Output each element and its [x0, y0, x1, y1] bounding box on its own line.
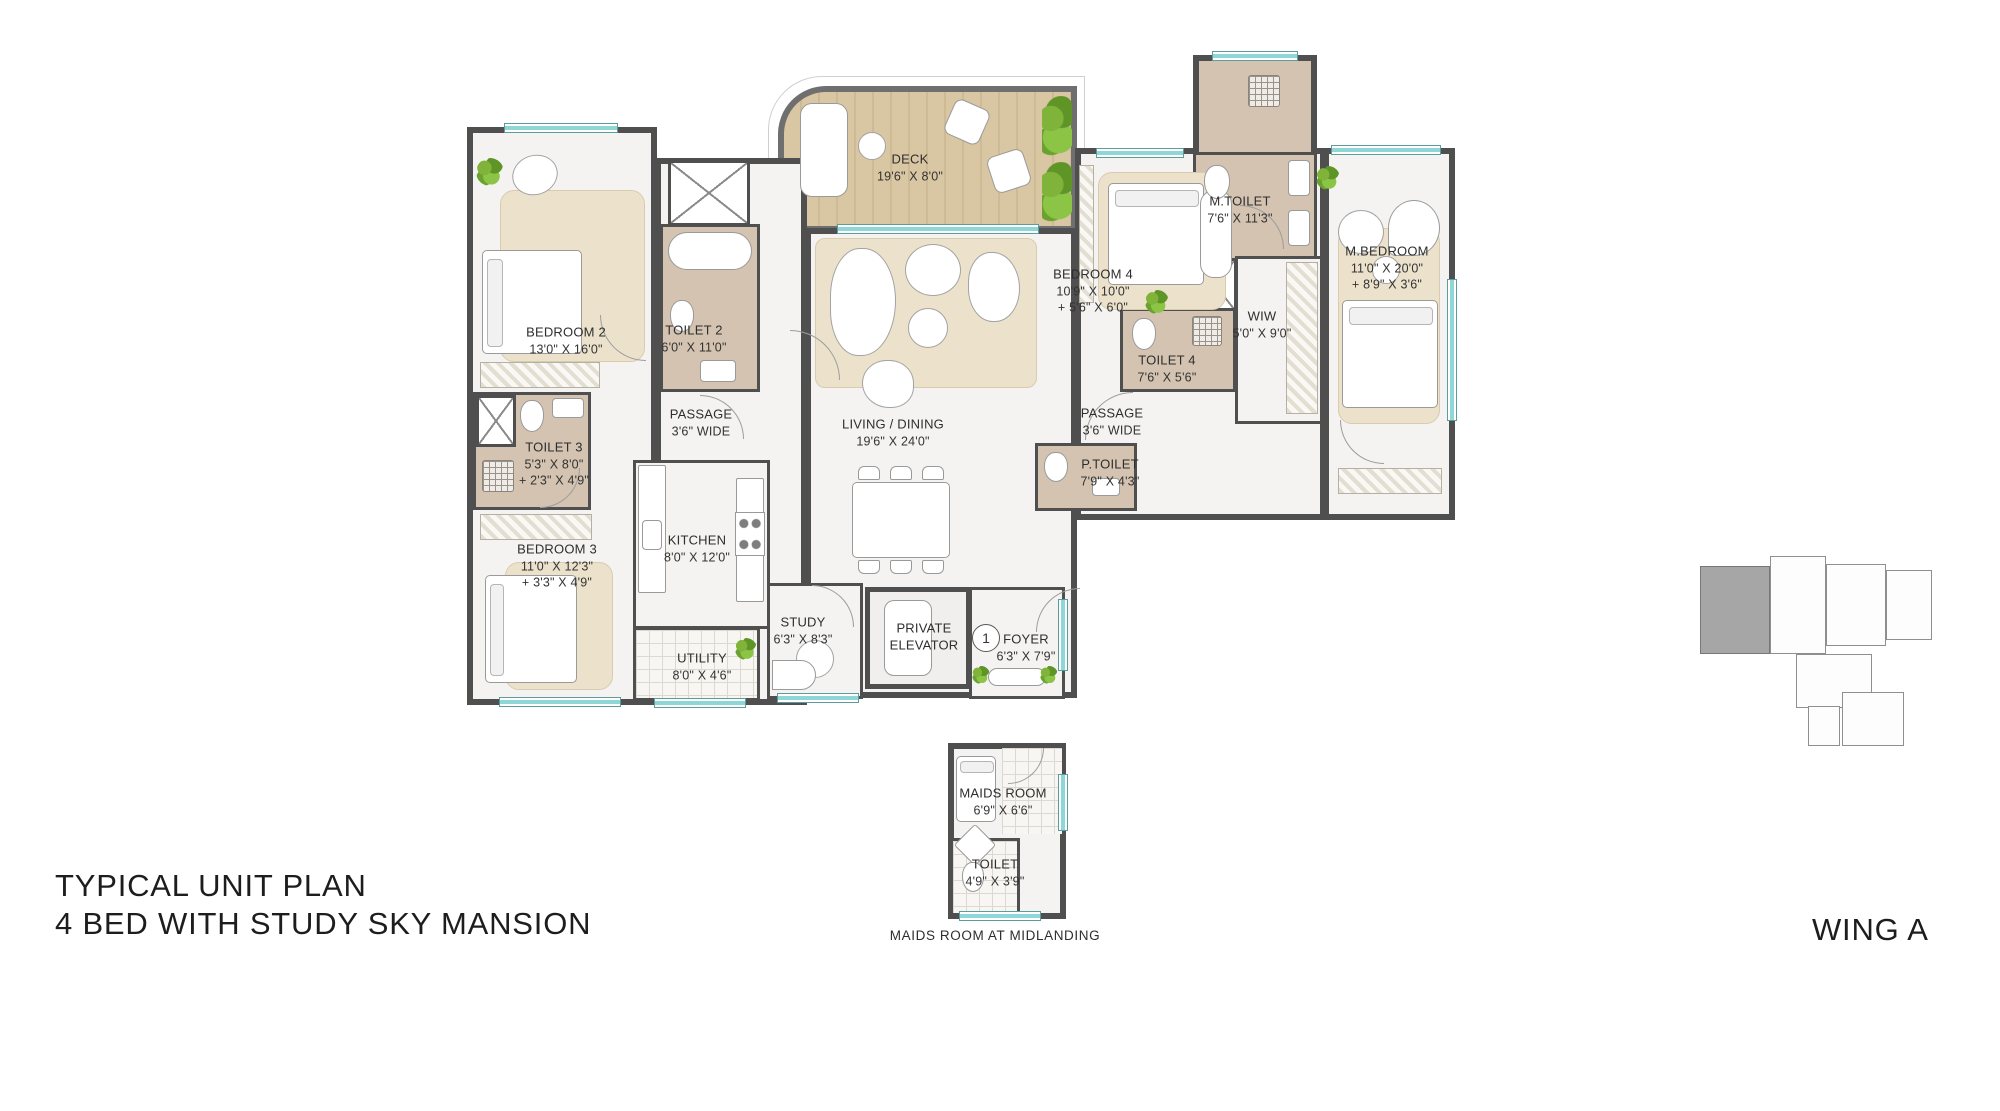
key-plan-unit [1808, 706, 1840, 746]
room-label-maids-toilet: TOILET4'9" X 3'9" [966, 857, 1025, 890]
window [1097, 149, 1183, 157]
sink-icon [1288, 160, 1310, 196]
toilet-icon [1044, 452, 1068, 482]
plan-title-line1: TYPICAL UNIT PLAN [55, 868, 367, 904]
plant-icon [735, 638, 757, 660]
foyer-level-marker: 1 [972, 624, 1000, 652]
sink-icon [700, 360, 736, 382]
window [1059, 775, 1067, 830]
window [655, 699, 745, 707]
plan-title-line2: 4 BED WITH STUDY SKY MANSION [55, 906, 591, 942]
chair-icon [858, 466, 880, 480]
room-label-m-bedroom: M.BEDROOM11'0" X 20'0"+ 8'9" X 3'6" [1345, 244, 1428, 293]
key-plan-unit [1842, 692, 1904, 746]
room-label-p-toilet: P.TOILET7'9" X 4'3" [1081, 457, 1140, 490]
maids-room-footnote: MAIDS ROOM AT MIDLANDING [890, 928, 1100, 943]
room-label-passage-right: PASSAGE3'6" WIDE [1081, 406, 1144, 439]
armchair-icon [862, 360, 914, 408]
key-plan-unit [1886, 570, 1932, 640]
room-label-utility: UTILITY8'0" X 4'6" [673, 651, 732, 684]
room-label-bedroom3: BEDROOM 311'0" X 12'3"+ 3'3" X 4'9" [517, 542, 597, 591]
room-label-toilet2: TOILET 26'0" X 11'0" [661, 323, 726, 356]
room-label-bedroom4: BEDROOM 410'9" X 10'0"+ 5'6" X 6'0" [1053, 267, 1133, 316]
room-label-m-toilet: M.TOILET7'6" X 11'3" [1207, 194, 1272, 227]
room-label-bedroom2: BEDROOM 213'0" X 16'0" [526, 325, 606, 358]
bathtub-icon [668, 232, 752, 270]
wall-segment [1320, 148, 1329, 520]
chair-icon [890, 560, 912, 574]
wing-label: WING A [1812, 912, 1929, 948]
armchair-icon [968, 252, 1020, 322]
toilet-icon [520, 400, 544, 432]
sink-icon [642, 520, 662, 550]
room-label-wiw: WIW5'0" X 9'0" [1233, 309, 1292, 342]
room-label-living: LIVING / DINING19'6" X 24'0" [842, 417, 944, 450]
dining-table-icon [852, 482, 950, 558]
chair-icon [922, 560, 944, 574]
bed-icon [485, 575, 577, 683]
key-plan-unit [1770, 556, 1826, 654]
plant-icon [1040, 666, 1058, 684]
shower-icon [1192, 316, 1222, 346]
room-label-maids-room: MAIDS ROOM6'9" X 6'6" [959, 786, 1046, 819]
chair-icon [890, 466, 912, 480]
wardrobe-icon [1338, 468, 1442, 494]
coffee-table-icon [908, 308, 948, 348]
sink-icon [552, 398, 584, 418]
chair-icon [922, 466, 944, 480]
shower-icon [1248, 75, 1280, 107]
duct-shaft [476, 395, 516, 447]
floor-plan-page: DECK19'6" X 8'0" BEDROOM 213'0" X 16'0" … [0, 0, 2000, 1111]
sink-icon [1288, 210, 1310, 246]
plant-icon [1042, 162, 1072, 226]
room-label-deck: DECK19'6" X 8'0" [877, 152, 943, 185]
bed-icon [1342, 300, 1438, 408]
wardrobe-icon [480, 514, 592, 540]
wardrobe-icon [480, 362, 600, 388]
window [960, 912, 1040, 920]
plant-icon [476, 158, 504, 186]
room-label-foyer: FOYER6'3" X 7'9" [997, 632, 1056, 665]
duct-shaft [668, 160, 750, 226]
window [1448, 280, 1456, 420]
key-plan [1700, 556, 1935, 748]
window [500, 698, 620, 706]
room-label-kitchen: KITCHEN8'0" X 12'0" [664, 533, 730, 566]
window [1213, 52, 1297, 60]
desk-icon [772, 660, 816, 690]
plant-icon [972, 666, 990, 684]
window [1332, 146, 1440, 154]
window [778, 694, 858, 702]
room-label-toilet4: TOILET 47'6" X 5'6" [1138, 353, 1197, 386]
room-label-toilet3: TOILET 35'3" X 8'0"+ 2'3" X 4'9" [519, 440, 589, 489]
key-plan-unit [1826, 564, 1886, 646]
plant-icon [1145, 290, 1169, 314]
bench-icon [988, 668, 1046, 686]
armchair-icon [905, 244, 961, 296]
window [505, 124, 617, 132]
stove-icon [735, 512, 765, 556]
chair-icon [858, 560, 880, 574]
toilet-icon [1132, 318, 1156, 350]
room-label-study: STUDY6'3" X 8'3" [774, 615, 833, 648]
window [838, 225, 1038, 233]
room-label-private-elevator: PRIVATE ELEVATOR [878, 620, 970, 653]
plant-icon [1316, 166, 1340, 190]
key-plan-highlighted-unit [1700, 566, 1770, 654]
plant-icon [1042, 96, 1072, 160]
sofa-icon [800, 103, 848, 197]
room-label-passage-left: PASSAGE3'6" WIDE [670, 407, 733, 440]
shower-icon [482, 460, 514, 492]
